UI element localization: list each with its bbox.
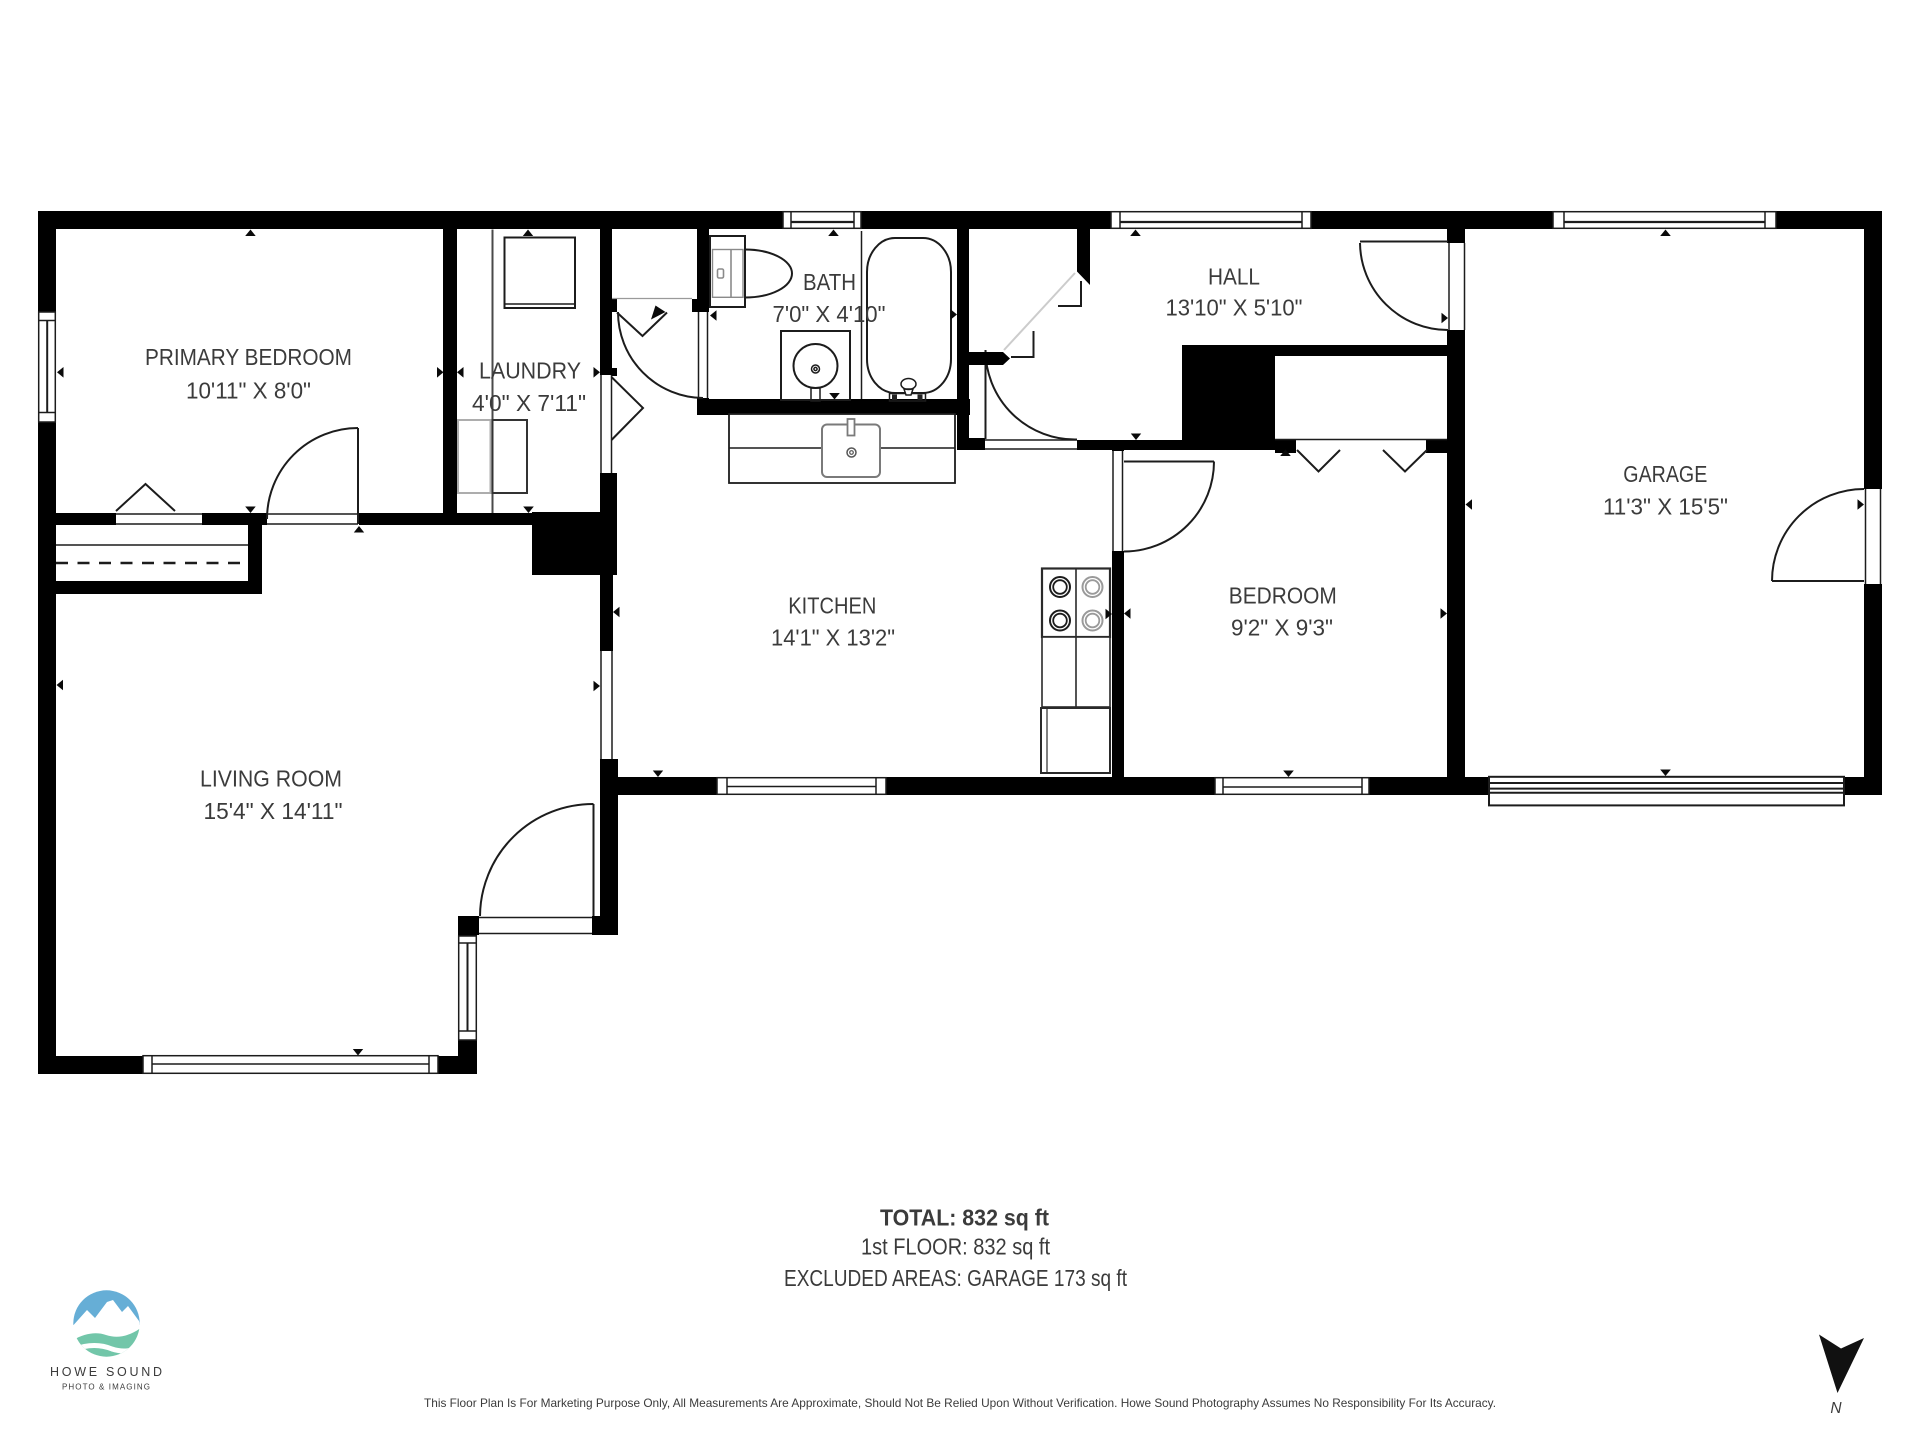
- svg-text:PRIMARY BEDROOM: PRIMARY BEDROOM: [145, 344, 352, 370]
- svg-text:9'2" X 9'3": 9'2" X 9'3": [1231, 615, 1333, 641]
- svg-text:TOTAL: 832 sq ft: TOTAL: 832 sq ft: [880, 1204, 1049, 1230]
- svg-text:PHOTO & IMAGING: PHOTO & IMAGING: [62, 1383, 150, 1392]
- svg-text:EXCLUDED AREAS: GARAGE 173 sq: EXCLUDED AREAS: GARAGE 173 sq ft: [784, 1265, 1127, 1291]
- svg-text:10'11" X 8'0": 10'11" X 8'0": [186, 378, 311, 404]
- svg-text:BATH: BATH: [803, 269, 856, 295]
- svg-text:LIVING ROOM: LIVING ROOM: [200, 766, 342, 792]
- svg-text:This Floor Plan Is For Marketi: This Floor Plan Is For Marketing Purpose…: [424, 1396, 1496, 1410]
- svg-text:HOWE SOUND: HOWE SOUND: [50, 1365, 162, 1379]
- svg-text:N: N: [1830, 1400, 1842, 1417]
- svg-text:HALL: HALL: [1208, 264, 1260, 290]
- svg-text:13'10" X 5'10": 13'10" X 5'10": [1166, 295, 1303, 321]
- svg-text:11'3" X 15'5": 11'3" X 15'5": [1603, 494, 1728, 520]
- svg-text:LAUNDRY: LAUNDRY: [479, 358, 581, 384]
- svg-text:4'0" X 7'11": 4'0" X 7'11": [472, 390, 586, 416]
- svg-text:15'4" X 14'11": 15'4" X 14'11": [204, 798, 343, 824]
- svg-text:GARAGE: GARAGE: [1623, 461, 1707, 487]
- svg-text:14'1" X 13'2": 14'1" X 13'2": [771, 625, 895, 651]
- svg-text:BEDROOM: BEDROOM: [1229, 583, 1337, 609]
- svg-text:1st FLOOR: 832 sq ft: 1st FLOOR: 832 sq ft: [861, 1234, 1051, 1260]
- svg-text:KITCHEN: KITCHEN: [788, 593, 876, 619]
- svg-text:7'0" X 4'10": 7'0" X 4'10": [773, 301, 886, 327]
